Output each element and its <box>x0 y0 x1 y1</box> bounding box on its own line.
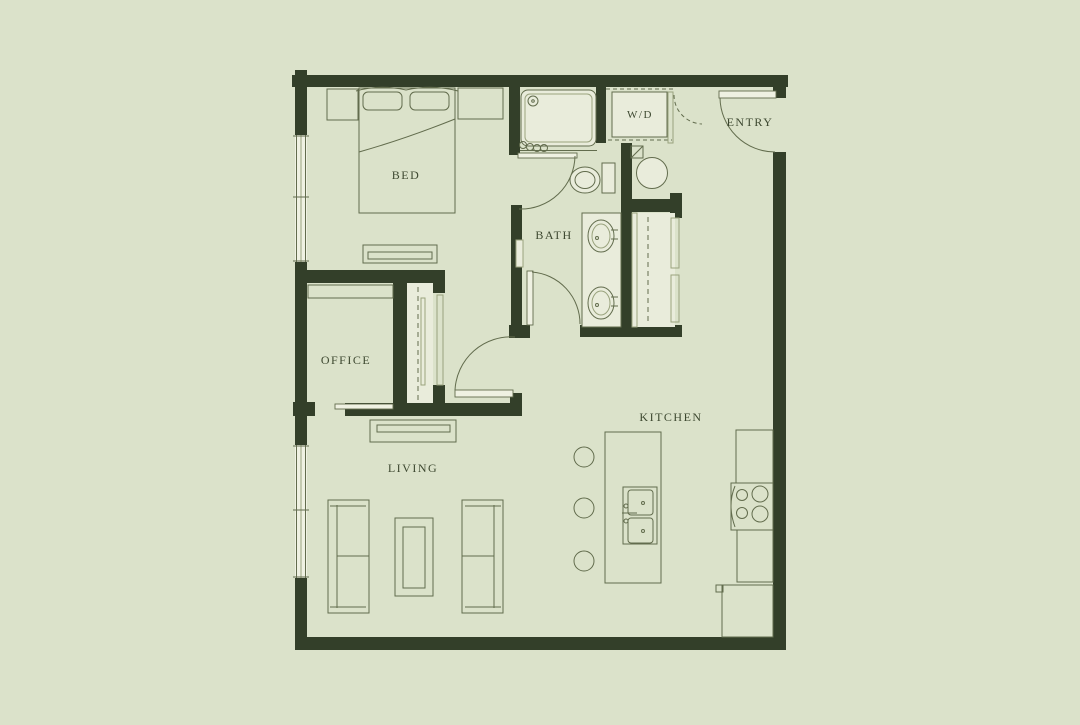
round-basin <box>637 158 668 189</box>
wall-segment <box>293 402 315 416</box>
vanity <box>582 213 621 327</box>
office-closet-part <box>407 283 433 403</box>
entry-closet <box>632 213 679 327</box>
shower-part <box>521 90 596 146</box>
room-label-kitchen: KITCHEN <box>639 410 702 424</box>
wall-segment <box>295 262 307 445</box>
room-label-entry: ENTRY <box>727 115 774 129</box>
floor-plan-svg: BEDBATHW/DENTRYOFFICELIVINGKITCHEN <box>0 0 1080 725</box>
wall-segment <box>295 637 786 650</box>
wall-segment <box>295 70 307 135</box>
room-label-living: LIVING <box>388 461 438 475</box>
window-living <box>293 445 309 578</box>
round-basin-part <box>637 158 668 189</box>
room-label-bed: BED <box>392 168 421 182</box>
entry-closet-part <box>632 213 675 327</box>
wet-room-door-part <box>518 153 577 158</box>
wallb-niche-part <box>516 240 523 267</box>
suite-door-part <box>455 390 513 397</box>
bath-door-part <box>527 271 533 325</box>
wall-segment <box>773 152 786 650</box>
entry-door-part <box>719 91 776 98</box>
shower <box>520 90 598 152</box>
wall-segment <box>393 283 407 403</box>
wall-segment <box>433 283 445 293</box>
wall-segment <box>292 75 788 87</box>
office-pocket-door <box>335 404 393 409</box>
wall-segment <box>295 270 445 283</box>
room-label-office: OFFICE <box>321 353 371 367</box>
toilet-part <box>602 163 615 193</box>
wall-segment <box>509 87 520 155</box>
room-label-bath: BATH <box>535 228 572 242</box>
office-pocket-door-part <box>335 404 393 409</box>
wall-segment <box>433 385 445 403</box>
office-closet <box>407 283 433 403</box>
window-bedroom <box>293 135 309 262</box>
floor-plan: BEDBATHW/DENTRYOFFICELIVINGKITCHEN <box>0 0 1080 725</box>
room-label-wd: W/D <box>627 109 653 121</box>
wallb-niche <box>516 240 523 267</box>
wall-segment <box>596 87 606 143</box>
wall-segment <box>511 205 522 336</box>
wall-segment <box>621 143 632 330</box>
